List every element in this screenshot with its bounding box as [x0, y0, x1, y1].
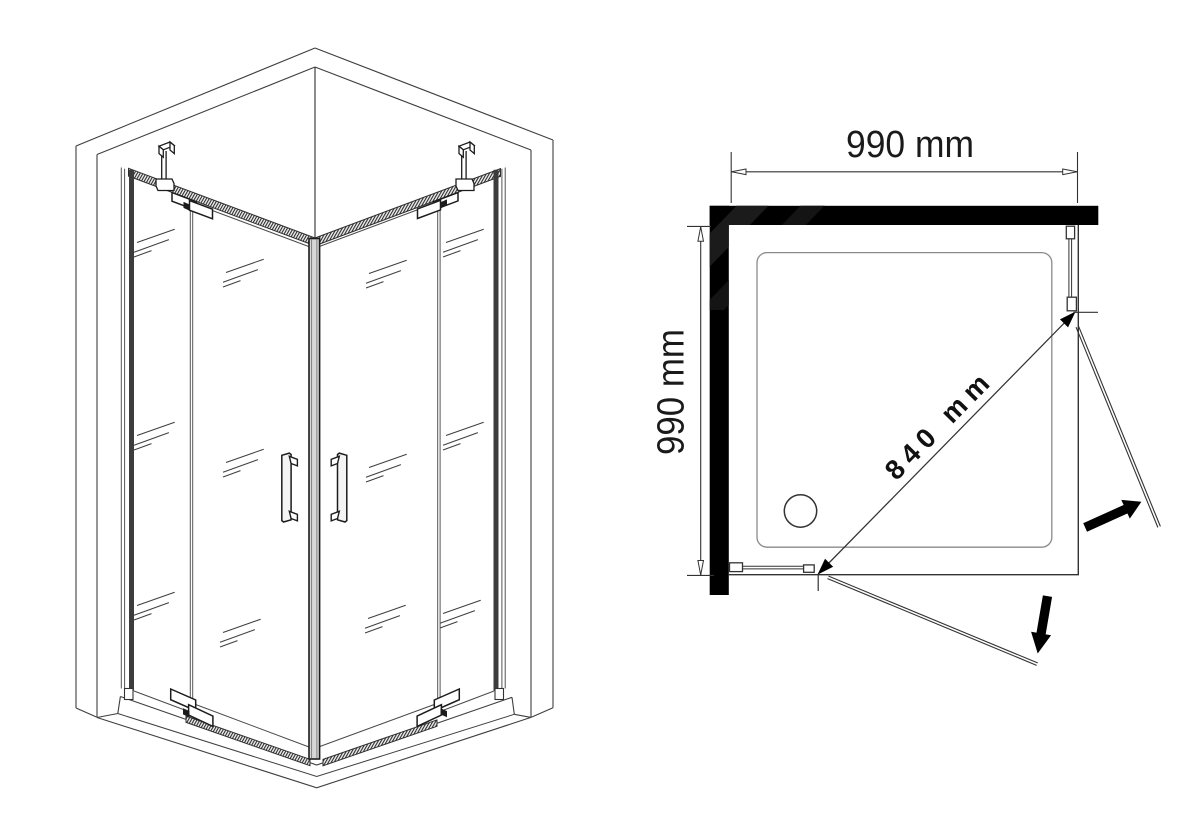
svg-text:840 mm: 840 mm [879, 363, 1000, 486]
svg-text:990 mm: 990 mm [651, 329, 693, 455]
svg-text:990 mm: 990 mm [846, 124, 974, 166]
